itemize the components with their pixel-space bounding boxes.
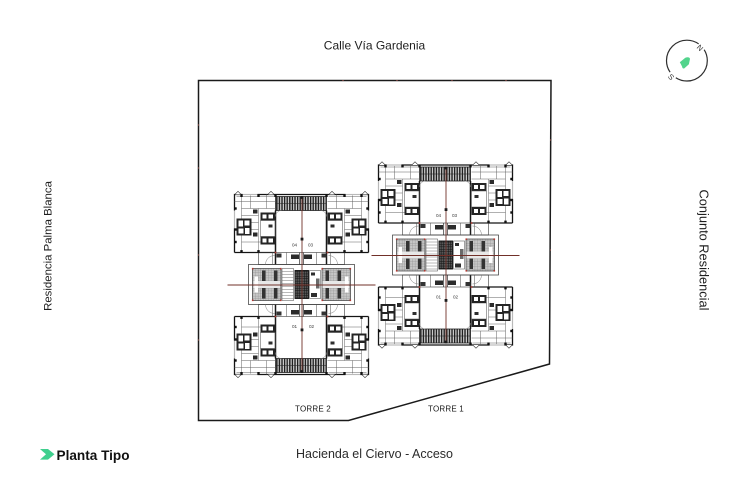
svg-text:TORRE 2: TORRE 2 (295, 404, 331, 413)
svg-text:04: 04 (436, 213, 442, 218)
svg-text:Calle Vía Gardenia: Calle Vía Gardenia (324, 39, 426, 53)
svg-text:03: 03 (308, 243, 314, 248)
svg-text:03: 03 (452, 213, 458, 218)
svg-text:02: 02 (453, 295, 459, 300)
svg-text:Conjunto Residencial: Conjunto Residencial (697, 190, 712, 311)
svg-text:Planta Tipo: Planta Tipo (57, 448, 130, 463)
svg-text:04: 04 (292, 243, 298, 248)
svg-text:Residencia Palma Blanca: Residencia Palma Blanca (43, 180, 55, 310)
svg-text:Hacienda el Ciervo - Acceso: Hacienda el Ciervo - Acceso (296, 447, 453, 461)
svg-text:02: 02 (309, 324, 315, 329)
svg-text:TORRE 1: TORRE 1 (428, 404, 464, 413)
svg-text:01: 01 (436, 295, 442, 300)
svg-text:01: 01 (292, 324, 298, 329)
